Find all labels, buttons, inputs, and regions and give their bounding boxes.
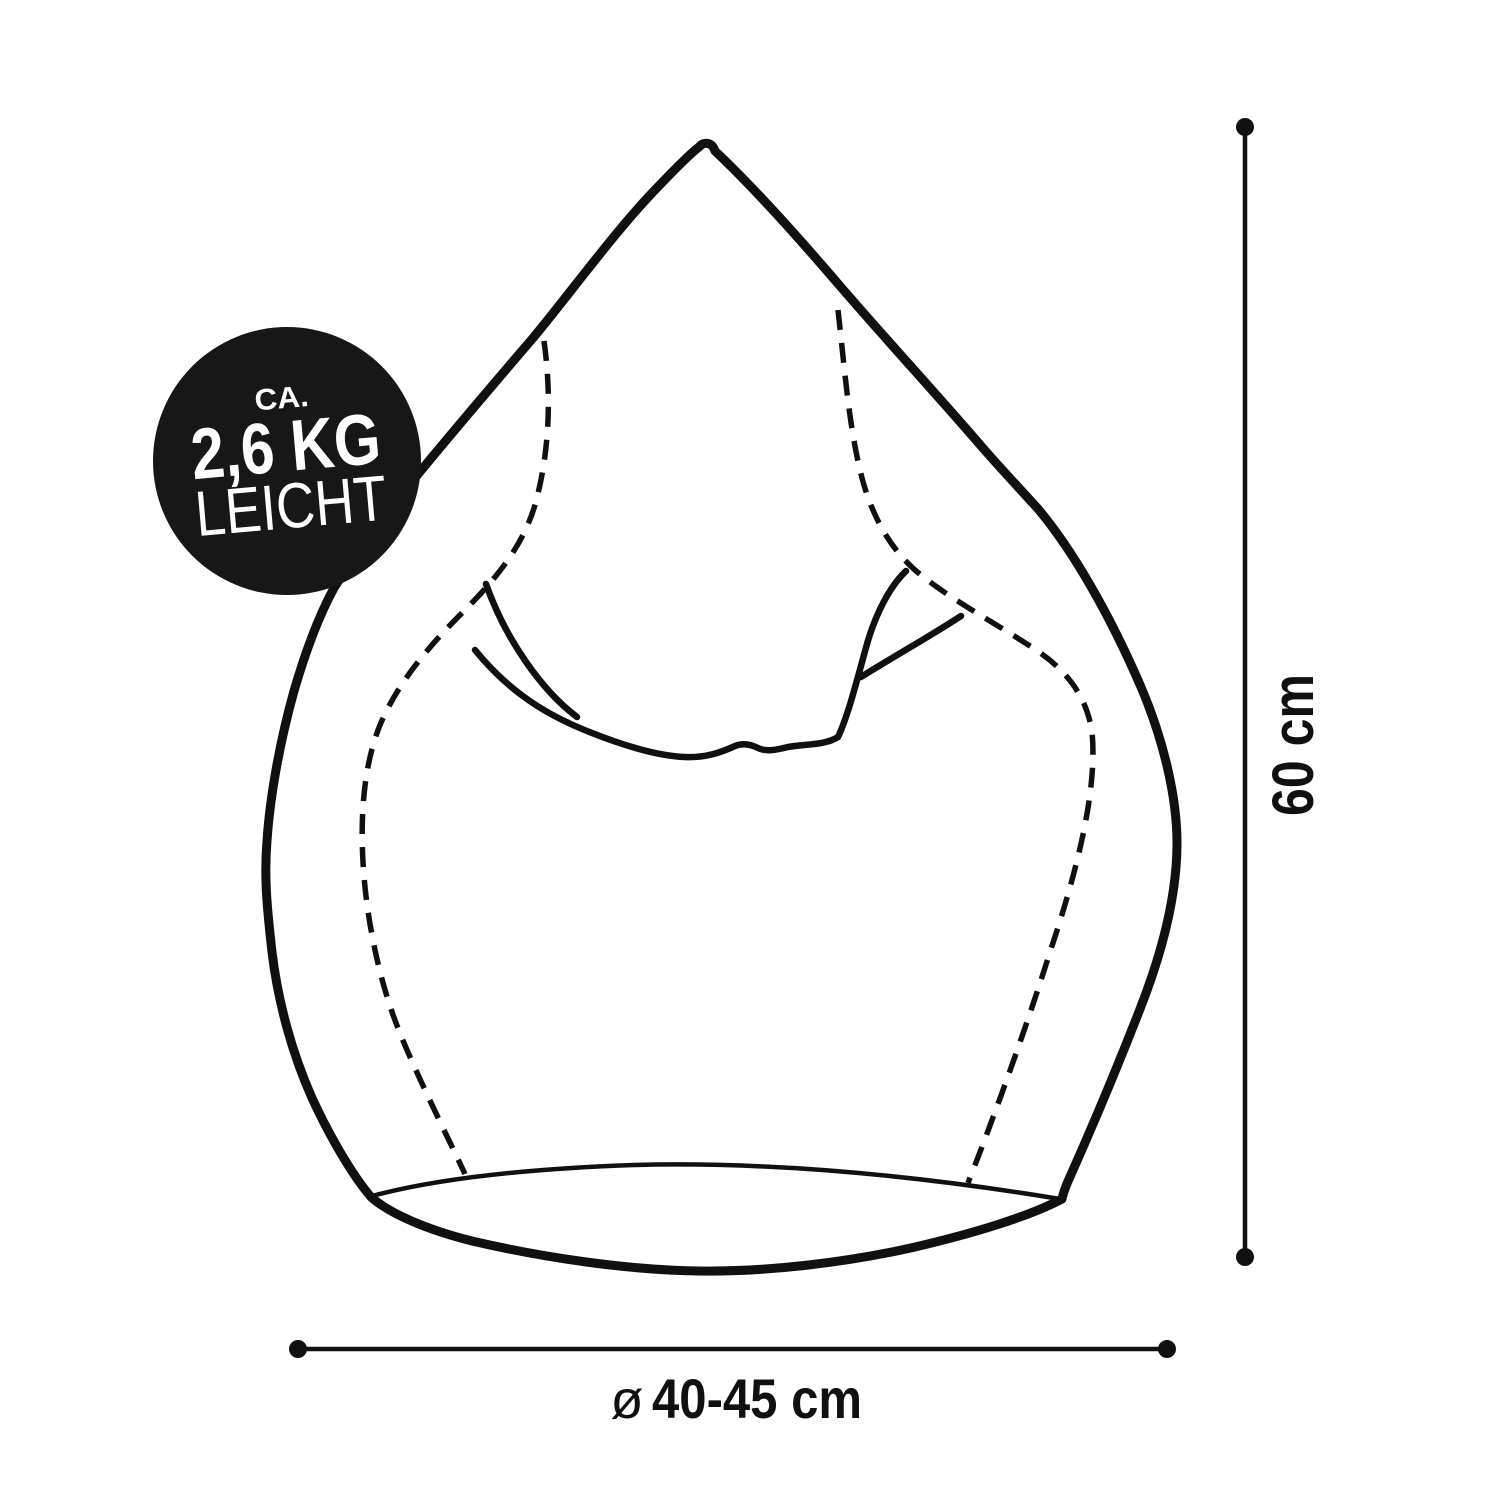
diagram-canvas: CA. 2,6 KG LEICHT 60 cm ø 40-45 cm (0, 0, 1500, 1500)
diameter-symbol: ø (611, 1370, 644, 1430)
diameter-dimension: ø 40-45 cm (289, 1340, 1176, 1430)
diameter-dimension-left-dot (289, 1340, 307, 1358)
base-ellipse-line (372, 1164, 1060, 1199)
crease-left (486, 584, 577, 717)
beanbag-illustration (266, 143, 1177, 1271)
diameter-dimension-right-dot (1158, 1340, 1176, 1358)
crease-center (475, 571, 906, 757)
beanbag-dimension-diagram: CA. 2,6 KG LEICHT 60 cm ø 40-45 cm (0, 0, 1500, 1500)
weight-badge: CA. 2,6 KG LEICHT (153, 327, 421, 595)
diameter-label: 40-45 cm (652, 1367, 862, 1430)
beanbag-outline (266, 143, 1177, 1271)
height-dimension-top-dot (1236, 118, 1254, 136)
height-label: 60 cm (1261, 674, 1326, 816)
seam-right-dashed (838, 310, 1093, 1183)
height-dimension: 60 cm (1236, 118, 1326, 1266)
height-dimension-bottom-dot (1236, 1248, 1254, 1266)
